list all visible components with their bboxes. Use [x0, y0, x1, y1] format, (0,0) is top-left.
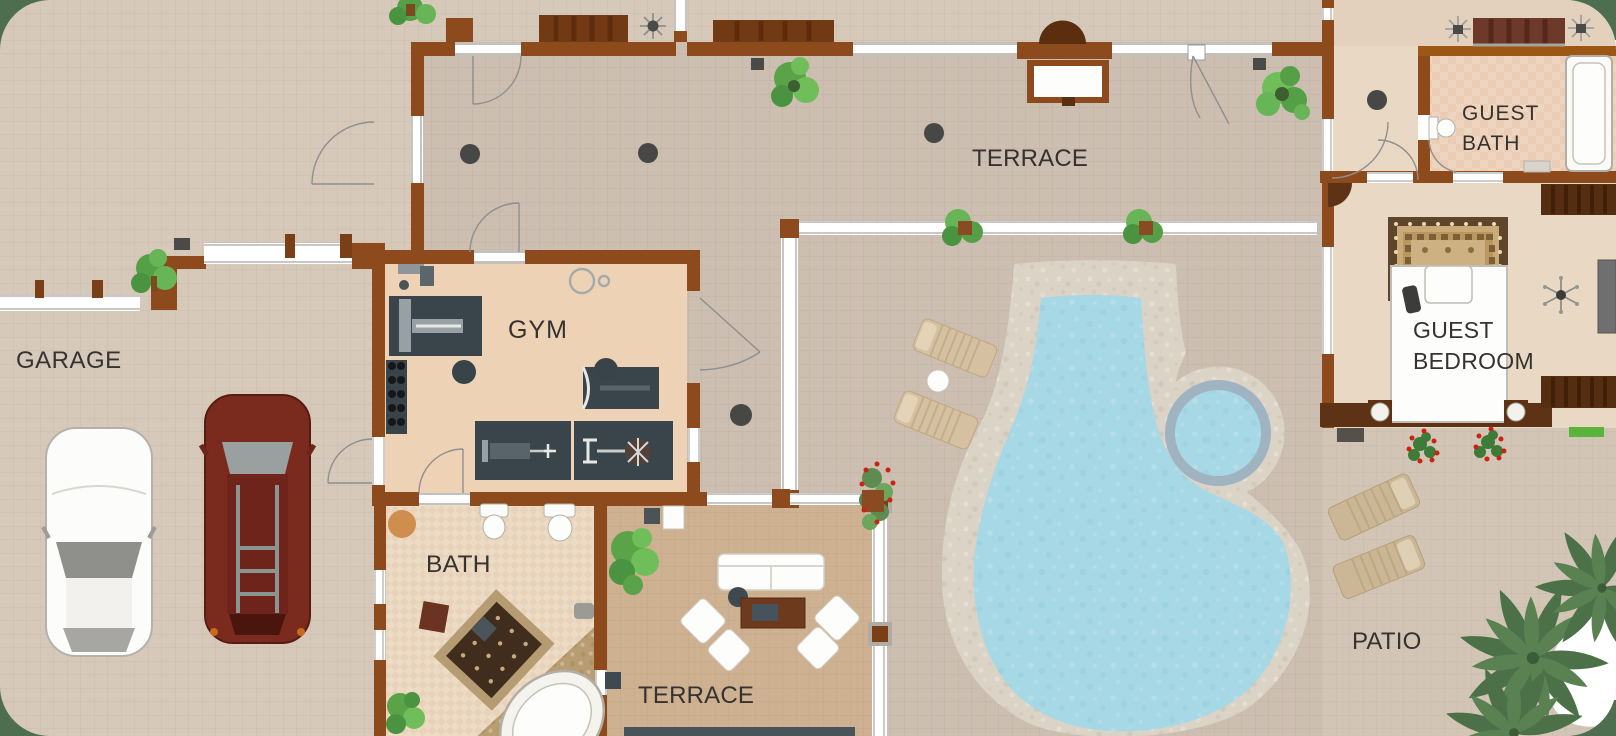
svg-text:TERRACE: TERRACE [638, 682, 754, 709]
svg-text:GUEST: GUEST [1462, 102, 1539, 125]
svg-text:BEDROOM: BEDROOM [1413, 348, 1534, 374]
svg-text:BATH: BATH [426, 551, 491, 578]
svg-text:BATH: BATH [1462, 132, 1520, 155]
svg-text:GARAGE: GARAGE [16, 347, 122, 374]
svg-text:PATIO: PATIO [1352, 628, 1421, 655]
svg-text:GUEST: GUEST [1413, 317, 1494, 343]
svg-text:TERRACE: TERRACE [972, 145, 1088, 172]
svg-text:GYM: GYM [508, 316, 568, 344]
